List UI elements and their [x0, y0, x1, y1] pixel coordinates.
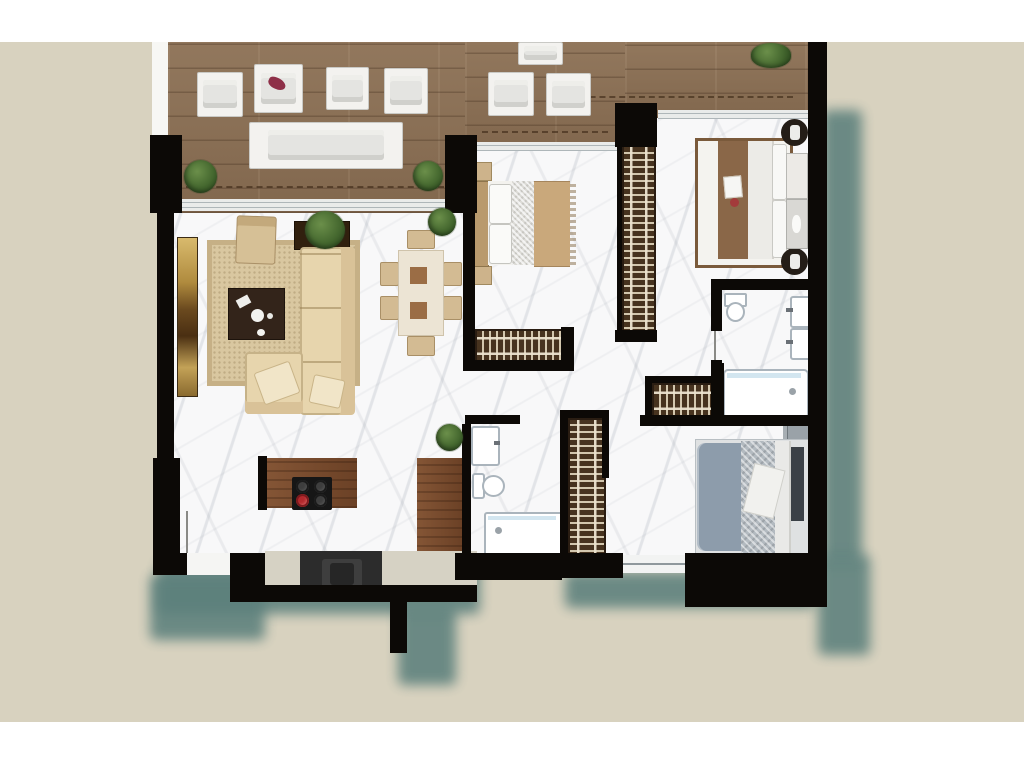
terrace-dashed-line-right [560, 96, 793, 98]
wardrobe-middle-bedroom [475, 329, 565, 364]
window-bottom-bedroom3 [623, 555, 685, 573]
bed-master-bedroom [695, 119, 808, 275]
wall-right [808, 42, 827, 555]
bottom-white-band [0, 722, 1024, 768]
bed-middle-pillow-2 [489, 224, 512, 264]
faucet-ensuite-2 [786, 340, 793, 344]
bath1-door-leaf [714, 331, 716, 360]
bed-master-red-accent [730, 198, 739, 207]
dresser-vase [792, 215, 801, 233]
bed-middle-fringe [570, 181, 576, 265]
coffee-table-bowl [257, 329, 265, 336]
wall-bottom-left-seg [153, 553, 187, 575]
wardrobe-third-bedroom [652, 383, 716, 419]
coffee-table-cup [267, 313, 273, 319]
plant-dining-top [428, 208, 456, 236]
burner-4 [314, 494, 327, 507]
round-side-table-top [781, 119, 808, 146]
bed-middle-pillow-1 [489, 184, 512, 224]
faucet-hall [494, 441, 500, 445]
bathtub-drain [789, 388, 796, 395]
faucet-ensuite-1 [786, 308, 793, 312]
bed-middle-bedroom [471, 160, 577, 285]
terrace-outdoor-sofa [249, 122, 403, 169]
wall-left-upper [157, 213, 174, 458]
wall-bath1-top [711, 279, 815, 290]
dining-placemat-2 [410, 302, 427, 319]
wall-pillar-2 [445, 135, 477, 213]
wall-corridor-ward-left [617, 118, 622, 332]
shadow-right [822, 110, 862, 565]
bed-middle-blanket [512, 181, 534, 265]
shower-water-line [488, 516, 556, 520]
coffee-table-book [236, 294, 252, 308]
living-armchair [235, 215, 277, 264]
dresser-panel-2 [786, 199, 808, 249]
wall-hallway-ward-left-rail [560, 412, 568, 553]
wall-wardrobe2-bottom-bar [463, 360, 573, 371]
dining-chair-right-1 [443, 262, 462, 286]
wall-ward3-right-block [712, 363, 724, 425]
side-table-top-decor [790, 125, 800, 140]
wall-bed3-divider [640, 415, 812, 426]
dining-placemat-1 [410, 267, 427, 284]
shower-tray-hall [484, 512, 564, 558]
dining-table [398, 250, 444, 336]
toilet-ensuite-bowl [726, 302, 745, 322]
wall-bottom-right-corner [685, 553, 827, 607]
wall-left-lower [153, 458, 180, 555]
bathtub-water-line [727, 373, 801, 378]
wall-kitchen-bottom [250, 585, 477, 602]
bed3-cover-blue [697, 443, 741, 551]
coffee-table-plate [251, 309, 264, 322]
wall-kitchen-stub [258, 456, 267, 510]
wall-dining-bedroom [463, 207, 475, 370]
wall-wardrobe2-right-cap [561, 327, 574, 371]
wall-bottom-mid [562, 553, 623, 578]
wall-bottom-mid-left [455, 553, 562, 580]
dining-chair-bottom [407, 336, 435, 356]
shower-drain [495, 527, 502, 534]
wardrobe-hallway [568, 418, 606, 559]
plant-living-console [305, 211, 345, 249]
dining-set [379, 229, 461, 356]
coffee-table [228, 288, 285, 340]
dining-chair-top [407, 230, 435, 249]
plan-page-edge [152, 42, 168, 135]
bed-master-pillow-1 [772, 144, 787, 200]
wall-bath2-top [465, 415, 520, 424]
terrace-low-table [518, 42, 563, 65]
bed-master-tray [723, 175, 743, 198]
round-side-table-bottom [781, 248, 808, 275]
dining-chair-left-2 [380, 296, 399, 320]
entry-door-gap [187, 553, 230, 575]
terrace-armchair-1 [384, 68, 428, 114]
wall-corridor-ward-cap [615, 330, 657, 342]
plant-terrace-right [751, 43, 791, 68]
sliding-door-sill-living [182, 199, 445, 211]
bed-master-pillow-2 [772, 200, 787, 258]
bed-middle-cover-tan [534, 181, 570, 267]
wardrobe-corridor [622, 118, 656, 336]
burner-red [296, 494, 309, 507]
bed-master-quilt [748, 141, 774, 259]
top-white-band [0, 0, 1024, 42]
terrace-armchair-2 [488, 72, 534, 116]
bed-middle-pillow-zone [488, 181, 512, 265]
headboard-third [791, 447, 804, 521]
sofa-pillow-2 [308, 374, 345, 409]
toilet-hall-bowl [482, 475, 505, 497]
wall-bath1-left-upper [711, 279, 722, 331]
burner-1 [296, 480, 309, 493]
tv-sideboard [177, 237, 198, 397]
sink-basin-inner [330, 563, 354, 585]
terrace-armchair-3 [546, 73, 591, 116]
floor-plan-screenshot [0, 0, 1024, 768]
vanity-sink-hall [471, 426, 500, 466]
plant-kitchen [436, 424, 463, 451]
burner-2 [314, 480, 327, 493]
wall-pillar-left [150, 135, 182, 213]
bathtub-ensuite [723, 369, 809, 419]
dining-chair-right-2 [443, 296, 462, 320]
wall-ward3-left-rail [645, 376, 652, 424]
wall-bath2-left [462, 424, 471, 555]
plant-terrace-mid [413, 161, 443, 191]
dining-chair-left-1 [380, 262, 399, 286]
terrace-dashed-line-middle [482, 131, 608, 133]
sliding-door-sill-bedroom-middle [477, 142, 617, 151]
plant-terrace-left [184, 160, 217, 193]
entry-door-leaf [186, 511, 188, 553]
bed-third-bedroom [695, 421, 808, 555]
wall-ward3-top-bar [650, 376, 714, 383]
terrace-lounge-chair [197, 72, 243, 117]
sliding-door-sill-bedroom-right [658, 110, 808, 119]
wall-hallway-ward-right-rail [602, 412, 609, 478]
wall-hallway-ward-top-bar [560, 410, 609, 418]
terrace-dashed-line-left [186, 186, 444, 188]
dresser-panel-1 [786, 153, 808, 199]
terrace-side-table [326, 67, 369, 110]
cooktop [292, 477, 332, 510]
side-table-bottom-decor [790, 254, 800, 269]
wall-stub-bottom [390, 602, 407, 653]
